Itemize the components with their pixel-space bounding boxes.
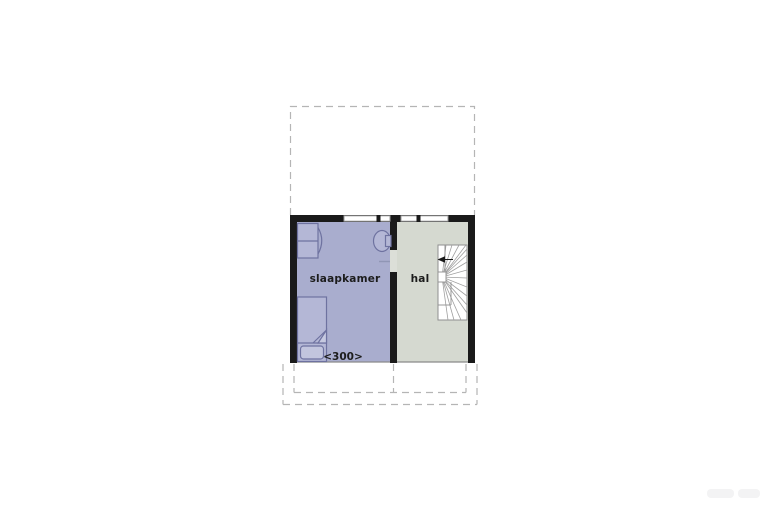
roof-slope-outline-dashed: [283, 364, 477, 405]
window-mullion: [377, 215, 381, 222]
room-label-slaapkamer: slaapkamer: [310, 273, 381, 285]
window-hal: [401, 215, 448, 222]
attic-outline-dashed: [291, 107, 475, 216]
corner-wash-basin-icon: [298, 224, 322, 259]
wall-wash-basin-icon: [374, 231, 392, 252]
staircase-icon: [438, 245, 468, 320]
bed-icon: [298, 297, 327, 362]
floorplan-drawing: slaapkamer hal <300>: [0, 0, 768, 512]
window-mullion: [417, 215, 421, 222]
window-slaapkamer: [344, 215, 390, 222]
floorplan-canvas: slaapkamer hal <300>: [0, 0, 768, 512]
door-threshold: [390, 250, 397, 272]
room-label-hal: hal: [411, 273, 430, 285]
watermark: [707, 489, 760, 498]
dimension-label: <300>: [323, 351, 363, 363]
